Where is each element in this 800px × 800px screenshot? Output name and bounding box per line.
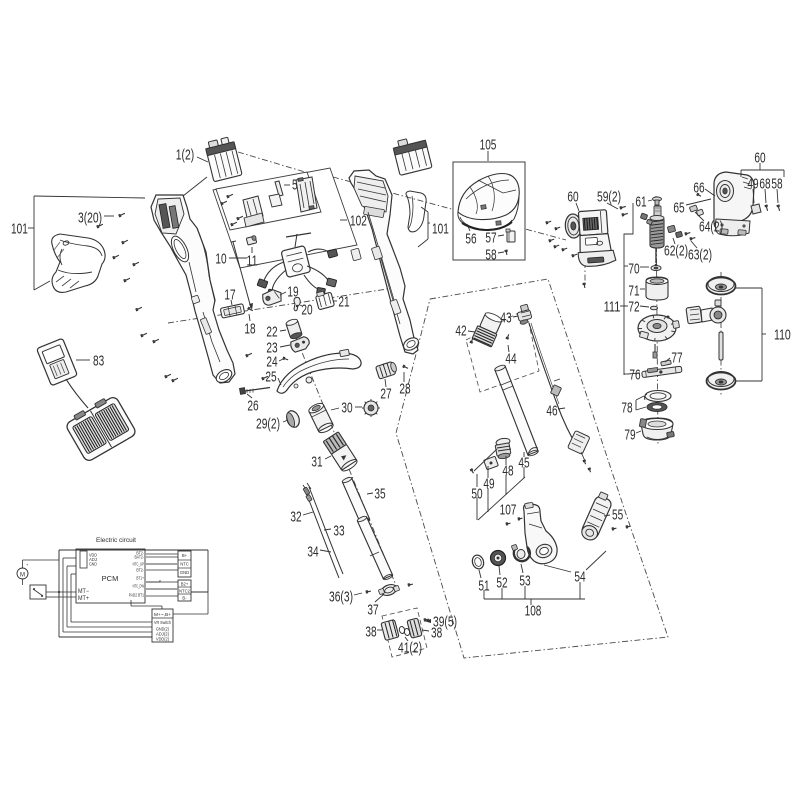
svg-text:M: M [20,573,25,579]
svg-text:62(2): 62(2) [664,242,688,259]
svg-text:101: 101 [11,220,28,237]
svg-text:39(5): 39(5) [433,613,457,630]
svg-text:77: 77 [671,349,682,366]
svg-text:46: 46 [546,402,557,419]
svg-text:28: 28 [399,380,410,397]
svg-text:61: 61 [635,193,646,210]
svg-text:36(3): 36(3) [329,588,353,605]
svg-text:20: 20 [301,301,312,318]
svg-text:PAD2 BT1: PAD2 BT1 [129,593,145,598]
svg-text:PCM: PCM [102,574,119,583]
svg-text:VDD(2): VDD(2) [156,637,170,642]
svg-text:5: 5 [292,176,298,193]
svg-text:25: 25 [265,368,276,385]
svg-text:30: 30 [341,399,352,416]
svg-text:79: 79 [624,426,635,443]
svg-text:1(2): 1(2) [176,146,194,163]
svg-text:32: 32 [290,508,301,525]
svg-text:3(20): 3(20) [78,209,102,226]
svg-text:102: 102 [350,212,367,229]
svg-text:110: 110 [774,326,791,343]
svg-text:BAT2-: BAT2- [135,555,145,560]
svg-text:11: 11 [246,252,257,269]
svg-text:107: 107 [500,501,517,518]
svg-text:101: 101 [432,220,449,237]
svg-text:65: 65 [673,199,684,216]
svg-text:57: 57 [485,229,496,246]
svg-text:60: 60 [567,188,578,205]
svg-text:70: 70 [628,260,639,277]
svg-text:35: 35 [374,485,385,502]
svg-text:NTC2: NTC2 [179,589,191,594]
svg-text:MT+: MT+ [78,596,89,602]
svg-text:22: 22 [266,323,277,340]
svg-text:64(2): 64(2) [699,218,723,235]
svg-text:41(2): 41(2) [398,639,422,656]
svg-text:55: 55 [612,506,623,523]
svg-text:29(2): 29(2) [256,415,280,432]
svg-text:GND: GND [89,562,97,567]
svg-text:83: 83 [93,352,104,369]
svg-text:26: 26 [247,397,258,414]
svg-text:33: 33 [333,522,344,539]
svg-text:18: 18 [244,320,255,337]
svg-text:B+: B+ [182,553,188,558]
svg-text:Electric circuit: Electric circuit [96,537,136,544]
svg-text:34: 34 [307,543,318,560]
svg-text:21: 21 [338,293,349,310]
svg-text:MT−: MT− [78,589,89,595]
svg-text:NTC_UP: NTC_UP [133,562,145,567]
svg-text:63(2): 63(2) [688,246,712,263]
svg-text:31: 31 [311,453,322,470]
svg-text:BT1+: BT1+ [136,576,144,581]
svg-text:VR Switch: VR Switch [154,620,171,625]
svg-text:105: 105 [480,136,497,153]
svg-text:78: 78 [621,399,632,416]
svg-text:NTC: NTC [180,561,189,566]
svg-text:76: 76 [629,366,640,383]
svg-text:B2+: B2+ [181,582,189,587]
svg-text:27: 27 [380,385,391,402]
svg-text:48: 48 [502,462,513,479]
svg-text:56: 56 [465,230,476,247]
svg-text:44: 44 [505,350,516,367]
svg-text:38: 38 [365,623,376,640]
svg-text:10: 10 [215,250,226,267]
svg-text:43: 43 [500,309,511,326]
svg-text:B-: B- [182,596,187,601]
svg-text:72: 72 [628,298,639,315]
svg-text:GND: GND [180,570,189,575]
svg-text:NTC_DW: NTC_DW [133,584,144,589]
svg-text:BT2-: BT2- [136,568,144,573]
svg-text:59(2): 59(2) [597,188,621,205]
svg-text:42: 42 [455,322,466,339]
svg-text:58: 58 [485,246,496,263]
svg-text:111: 111 [604,298,621,315]
svg-text:108: 108 [525,602,542,619]
svg-text:17: 17 [224,286,235,303]
svg-text:71: 71 [628,282,639,299]
svg-text:37: 37 [367,601,378,618]
svg-text:M+~,B+: M+~,B+ [154,612,171,617]
svg-text:49: 49 [483,475,494,492]
